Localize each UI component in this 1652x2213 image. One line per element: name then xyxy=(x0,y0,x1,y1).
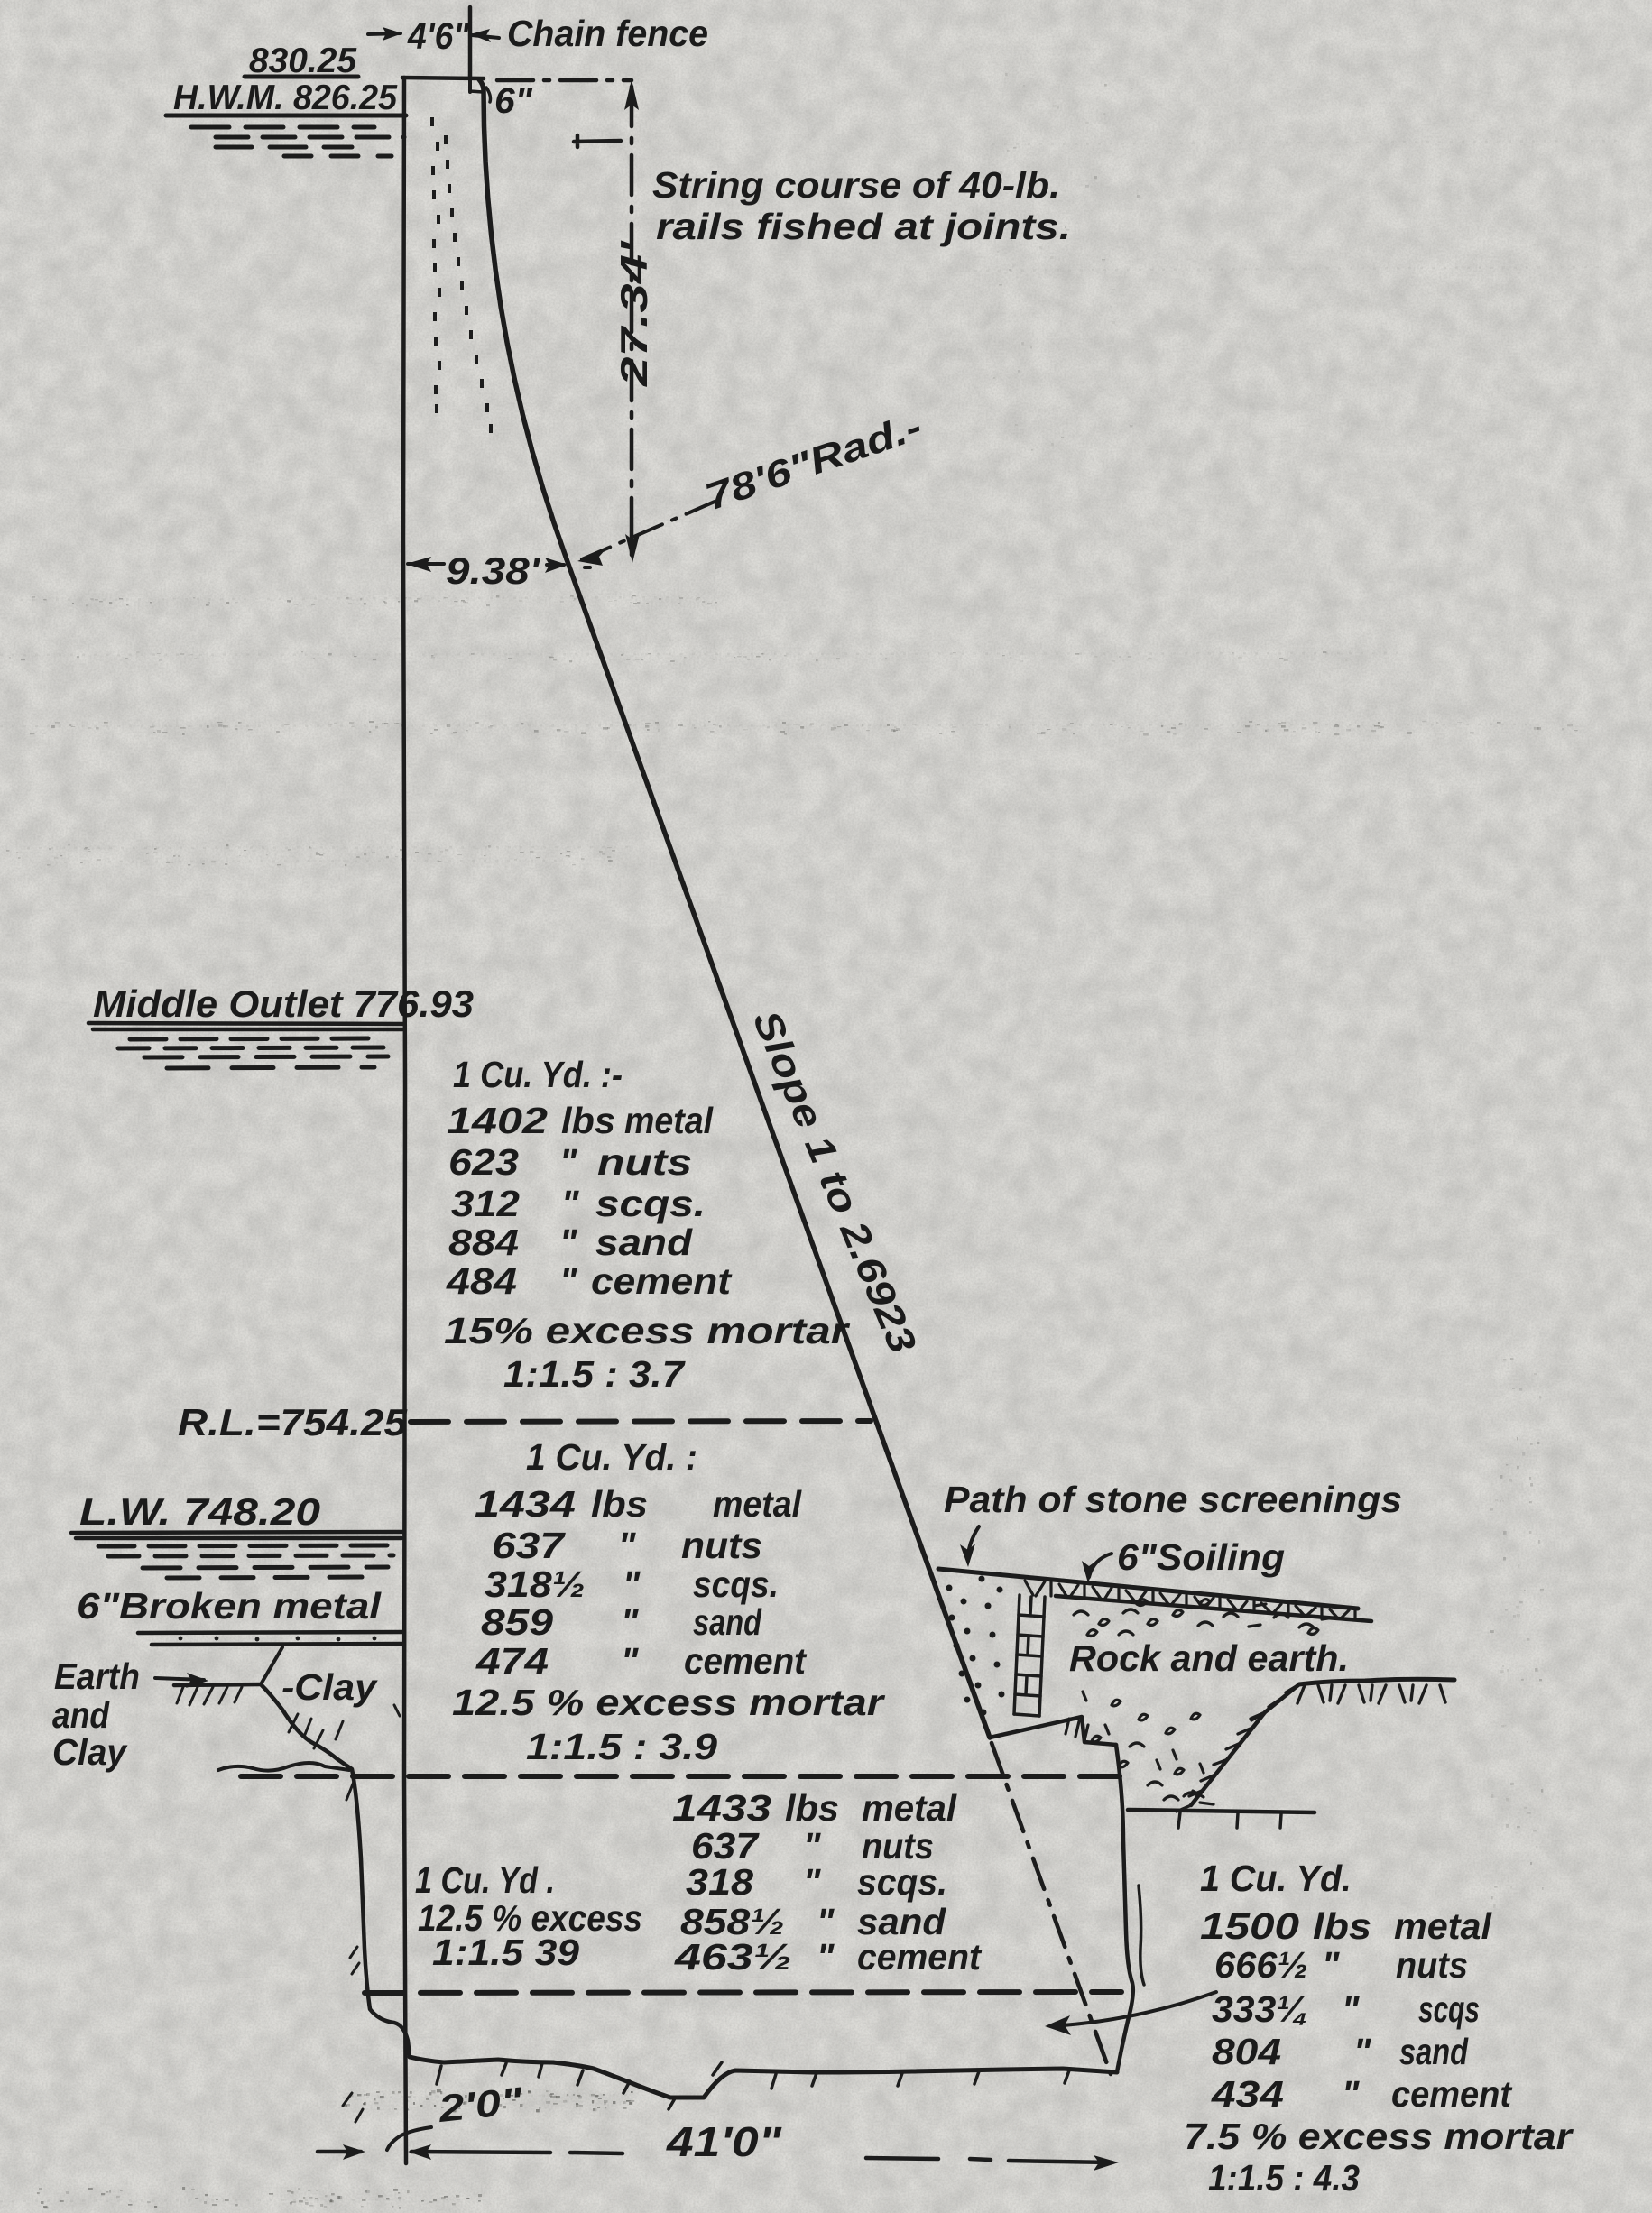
svg-text:1 Cu. Yd. :: 1 Cu. Yd. : xyxy=(526,1436,697,1478)
svg-text:": " xyxy=(1322,1944,1340,1986)
svg-text:1:1.5 : 3.7: 1:1.5 : 3.7 xyxy=(503,1353,686,1395)
svg-text:lbs: lbs xyxy=(785,1787,839,1829)
svg-text:metal: metal xyxy=(624,1100,714,1141)
svg-text:sand: sand xyxy=(595,1222,693,1263)
svg-text:": " xyxy=(561,1183,579,1224)
svg-text:cement: cement xyxy=(857,1936,983,1978)
svg-text:rails fished at joints.: rails fished at joints. xyxy=(656,206,1071,247)
svg-text:318½: 318½ xyxy=(485,1563,586,1605)
svg-text:String course of 40-lb.: String course of 40-lb. xyxy=(652,164,1060,206)
svg-text:884: 884 xyxy=(448,1222,519,1263)
svg-text:637: 637 xyxy=(492,1525,567,1566)
svg-text:scqs.: scqs. xyxy=(595,1183,706,1224)
svg-text:": " xyxy=(1342,1988,1360,2030)
svg-text:": " xyxy=(559,1222,577,1263)
svg-text:15% excess mortar: 15% excess mortar xyxy=(444,1310,850,1351)
svg-text:": " xyxy=(621,1601,639,1643)
svg-text:2'0": 2'0" xyxy=(436,2079,526,2130)
svg-text:lbs: lbs xyxy=(591,1483,648,1525)
svg-text:830.25: 830.25 xyxy=(249,41,357,80)
svg-text:-Clay: -Clay xyxy=(281,1666,378,1708)
svg-text:Chain fence: Chain fence xyxy=(507,13,708,54)
svg-text:scqs: scqs xyxy=(1418,1988,1480,2030)
svg-text:and: and xyxy=(52,1694,110,1736)
svg-text:cement: cement xyxy=(684,1640,808,1682)
svg-text:4'6": 4'6" xyxy=(407,14,470,57)
svg-text:804: 804 xyxy=(1212,2031,1281,2072)
svg-text:623: 623 xyxy=(448,1141,519,1183)
svg-text:nuts: nuts xyxy=(681,1525,762,1566)
svg-text:": " xyxy=(803,1861,821,1903)
svg-text:sand: sand xyxy=(1399,2031,1469,2072)
svg-text:Middle Outlet 776.93: Middle Outlet 776.93 xyxy=(93,982,474,1025)
svg-text:scqs.: scqs. xyxy=(693,1563,779,1605)
svg-text:lbs: lbs xyxy=(1313,1905,1371,1947)
svg-text:": " xyxy=(621,1640,639,1682)
svg-text:": " xyxy=(1342,2073,1360,2115)
svg-text:1 Cu. Yd .: 1 Cu. Yd . xyxy=(415,1859,555,1901)
svg-text:metal: metal xyxy=(1394,1905,1493,1947)
svg-text:6"Broken metal: 6"Broken metal xyxy=(77,1585,383,1627)
svg-text:318: 318 xyxy=(686,1861,753,1903)
svg-text:metal: metal xyxy=(862,1787,958,1829)
svg-text:859: 859 xyxy=(481,1601,553,1643)
svg-text:312: 312 xyxy=(451,1183,520,1224)
svg-text:H.W.M. 826.25: H.W.M. 826.25 xyxy=(173,78,398,117)
svg-text:": " xyxy=(559,1141,577,1183)
svg-text:1434: 1434 xyxy=(475,1483,576,1525)
svg-text:Earth: Earth xyxy=(54,1655,140,1697)
svg-text:474: 474 xyxy=(475,1640,549,1682)
svg-text:666½: 666½ xyxy=(1214,1944,1308,1986)
svg-text:nuts: nuts xyxy=(1396,1944,1468,1986)
svg-text:scqs.: scqs. xyxy=(857,1861,947,1903)
svg-text:metal: metal xyxy=(713,1483,802,1525)
svg-text:Path of stone screenings: Path of stone screenings xyxy=(944,1479,1402,1520)
svg-text:463½: 463½ xyxy=(674,1936,792,1978)
svg-text:333¼: 333¼ xyxy=(1212,1988,1308,2030)
svg-text:9.38': 9.38' xyxy=(446,549,541,592)
svg-text:12.5 % excess mortar: 12.5 % excess mortar xyxy=(452,1682,885,1723)
svg-text:R.L.=754.25: R.L.=754.25 xyxy=(178,1401,408,1443)
svg-text:lbs: lbs xyxy=(561,1100,615,1141)
svg-text:7.5 % excess mortar: 7.5 % excess mortar xyxy=(1184,2116,1574,2157)
svg-text:cement: cement xyxy=(591,1260,734,1302)
svg-text:6": 6" xyxy=(494,81,533,121)
svg-text:434: 434 xyxy=(1211,2073,1284,2115)
svg-text:": " xyxy=(618,1525,636,1566)
svg-text:L.W. 748.20: L.W. 748.20 xyxy=(79,1490,320,1533)
svg-text:Clay: Clay xyxy=(52,1731,128,1773)
svg-text:6"Soiling: 6"Soiling xyxy=(1117,1536,1285,1578)
svg-text:1 Cu. Yd.: 1 Cu. Yd. xyxy=(1200,1858,1352,1899)
svg-text:1402: 1402 xyxy=(447,1100,548,1141)
svg-text:41'0": 41'0" xyxy=(666,2118,783,2165)
svg-text:": " xyxy=(623,1563,641,1605)
svg-text:sand: sand xyxy=(693,1601,762,1643)
svg-text:1:1.5 : 3.9: 1:1.5 : 3.9 xyxy=(526,1726,717,1767)
svg-text:1 Cu. Yd. :-: 1 Cu. Yd. :- xyxy=(453,1054,623,1095)
svg-text:1500: 1500 xyxy=(1200,1905,1299,1947)
svg-text:1:1.5 39: 1:1.5 39 xyxy=(432,1932,579,1973)
svg-text:": " xyxy=(559,1260,577,1302)
svg-text:Rock and earth.: Rock and earth. xyxy=(1069,1637,1349,1679)
svg-text:": " xyxy=(817,1936,835,1978)
svg-text:484: 484 xyxy=(446,1260,517,1302)
svg-text:27.34': 27.34' xyxy=(613,239,655,387)
svg-text:1433: 1433 xyxy=(672,1787,771,1829)
svg-text:cement: cement xyxy=(1391,2073,1513,2115)
svg-text:": " xyxy=(1353,2031,1371,2072)
svg-text:nuts: nuts xyxy=(597,1141,692,1183)
svg-text:1:1.5 : 4.3: 1:1.5 : 4.3 xyxy=(1208,2157,1360,2199)
